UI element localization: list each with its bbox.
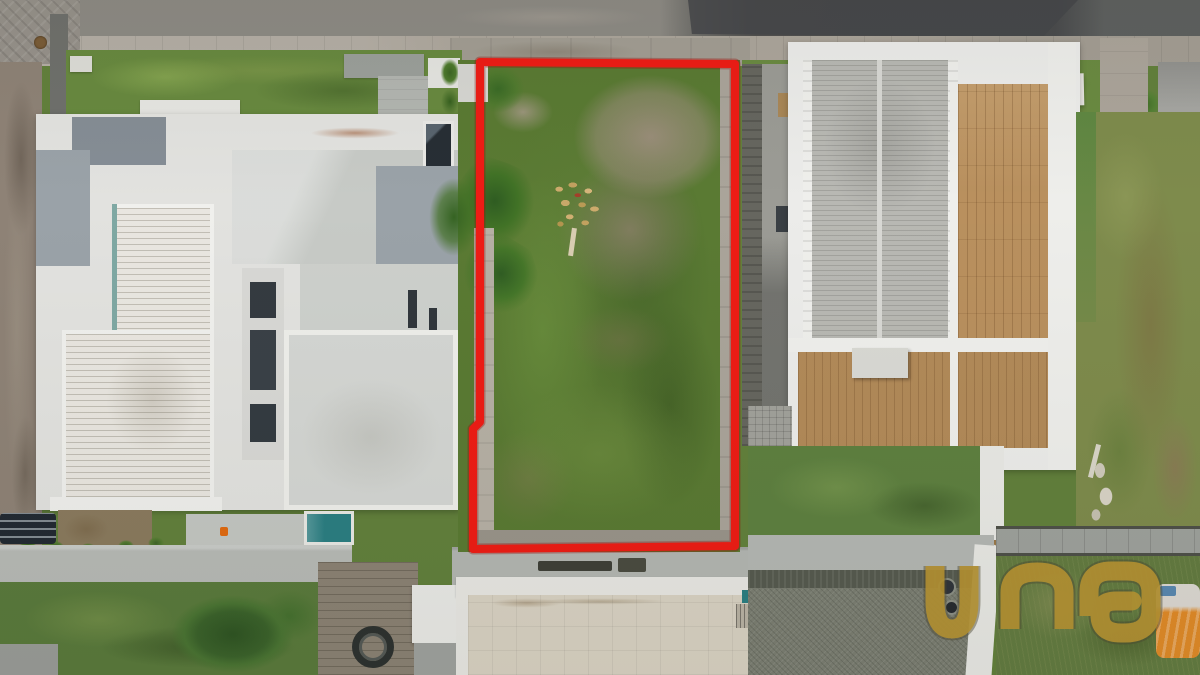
metal-roof-edge [112,204,117,334]
corner-pavement [0,644,58,675]
yard-block [70,56,92,72]
large-bush [168,584,330,675]
hose-coil [352,626,394,668]
parapet [788,338,1050,352]
parapet [1048,42,1076,470]
roof-stain [300,126,410,140]
metal-roof-lower [62,330,214,502]
road-patch [420,2,680,32]
paver-patch [748,406,792,446]
bare-soil-patch [560,300,680,380]
roof-vent [938,578,956,596]
roof-edge [803,60,812,350]
parapet [950,84,958,450]
aerial-photo [0,0,1200,675]
retaining-wall [742,64,762,446]
shed-roof [412,585,462,643]
atrium-window [250,330,276,390]
right-house-wood-deck [798,352,1050,448]
left-house-terrace [284,330,458,510]
left-house-gray-roof [36,150,90,266]
parapet [50,497,222,511]
right-house-wood-deck [958,84,1050,350]
manhole-cover [34,36,47,49]
side-passage [762,64,790,446]
roof-vent [944,600,959,615]
hedge [440,58,460,116]
neighbor-roof [748,588,978,675]
building-shadow-on-road [688,0,1078,37]
bag-label [1160,586,1176,596]
shed-side [414,643,462,675]
lot-boundary-wall [472,530,736,550]
yard-wall [140,100,240,114]
window-slit [408,290,417,328]
atrium-window [250,404,276,442]
gutter [538,561,612,571]
driveway-left [0,545,352,587]
lot-boundary-wall [474,228,494,548]
plank-walkway [996,526,1200,556]
pool-patio [186,514,304,548]
atrium-window [250,282,276,318]
yard-wall-center [344,54,424,78]
terrace-parapet [456,577,762,597]
hydrant [220,527,228,536]
gutter [618,558,646,572]
debris [1084,452,1124,526]
dirt-strip [58,510,152,548]
grass-strip [1076,112,1096,322]
right-house-lawn [748,446,1000,538]
wood-debris-pile [548,176,610,236]
window-slit [429,308,437,330]
swimming-pool [304,511,354,545]
sidewalk-branch [1100,38,1148,118]
palm-fronds [428,176,480,258]
metal-roof-upper [112,204,214,334]
lot-gate [458,64,488,102]
stone-table [852,348,908,378]
lot-boundary-wall [720,64,736,548]
roof-seam [877,60,882,350]
walkway-slab [748,535,994,573]
parked-car [0,513,56,544]
dirt-patch [1150,406,1200,530]
tiled-terrace [456,595,762,675]
